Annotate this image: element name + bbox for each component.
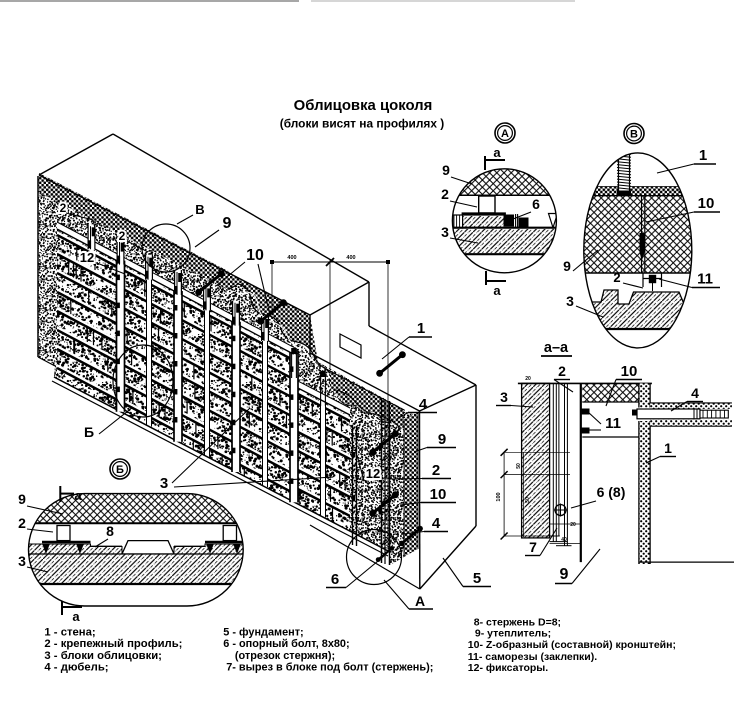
svg-text:6: 6 — [331, 571, 339, 588]
svg-text:5: 5 — [473, 570, 481, 587]
svg-text:3: 3 — [566, 293, 574, 309]
svg-text:1: 1 — [417, 320, 425, 337]
svg-text:12: 12 — [80, 250, 94, 265]
svg-text:3: 3 — [18, 553, 26, 569]
svg-text:(отрезок стержня);: (отрезок стержня); — [235, 650, 335, 662]
svg-text:20: 20 — [570, 522, 576, 528]
svg-text:В: В — [630, 129, 638, 141]
svg-text:20: 20 — [525, 376, 531, 382]
svg-text:4: 4 — [691, 385, 699, 401]
svg-text:6: 6 — [532, 196, 540, 212]
svg-text:2: 2 — [60, 201, 67, 215]
svg-text:1: 1 — [664, 440, 672, 456]
svg-text:7: 7 — [529, 539, 537, 555]
svg-text:a: a — [493, 283, 501, 298]
svg-text:3: 3 — [160, 475, 168, 492]
svg-text:9: 9 — [442, 162, 450, 178]
svg-text:9: 9 — [560, 566, 569, 583]
svg-text:4 - дюбель;: 4 - дюбель; — [44, 662, 108, 674]
svg-text:10- Z-образный (составной) кро: 10- Z-образный (составной) кронштейн; — [468, 639, 676, 651]
svg-text:100: 100 — [496, 492, 502, 501]
svg-text:2: 2 — [613, 270, 620, 285]
svg-text:2 - крепежный профиль;: 2 - крепежный профиль; — [44, 638, 182, 650]
svg-text:10: 10 — [430, 486, 447, 503]
svg-text:a: a — [72, 609, 80, 624]
svg-text:Облицовка цоколя: Облицовка цоколя — [294, 98, 433, 114]
svg-text:1: 1 — [699, 147, 707, 164]
svg-text:4: 4 — [432, 515, 441, 532]
svg-text:2: 2 — [119, 229, 126, 243]
svg-text:А: А — [501, 128, 509, 140]
svg-text:10: 10 — [246, 247, 264, 264]
svg-text:6 - опорный болт, 8х80;: 6 - опорный болт, 8х80; — [223, 638, 349, 650]
svg-text:a–a: a–a — [544, 340, 569, 356]
svg-text:1 - стена;: 1 - стена; — [44, 626, 95, 638]
svg-text:В: В — [195, 202, 204, 217]
svg-text:Б: Б — [84, 424, 94, 440]
svg-text:a: a — [74, 488, 82, 503]
svg-text:10: 10 — [698, 195, 715, 212]
svg-text:9: 9 — [223, 215, 232, 232]
svg-text:11: 11 — [697, 271, 713, 288]
svg-text:А: А — [415, 593, 425, 609]
svg-text:4: 4 — [419, 396, 428, 413]
svg-text:3: 3 — [441, 224, 449, 240]
svg-text:50: 50 — [516, 463, 522, 469]
svg-text:12- фиксаторы.: 12- фиксаторы. — [468, 662, 548, 674]
svg-text:9: 9 — [18, 491, 26, 507]
svg-text:5 - фундамент;: 5 - фундамент; — [223, 626, 303, 638]
svg-text:9: 9 — [563, 258, 571, 274]
svg-text:(блоки висят на профилях ): (блоки висят на профилях ) — [280, 117, 444, 131]
svg-text:11: 11 — [605, 415, 621, 432]
svg-text:10: 10 — [621, 363, 638, 380]
svg-text:50: 50 — [525, 497, 531, 503]
svg-text:Б: Б — [116, 464, 124, 476]
svg-text:2: 2 — [558, 363, 566, 379]
svg-text:400: 400 — [287, 255, 296, 261]
svg-text:40: 40 — [561, 537, 567, 543]
svg-text:7- вырез в блоке под болт (ст: 7- вырез в блоке под болт (стержень); — [226, 662, 433, 674]
svg-text:8: 8 — [106, 523, 114, 539]
svg-text:2: 2 — [432, 462, 440, 479]
svg-text:9- утеплитель;: 9- утеплитель; — [475, 628, 551, 640]
svg-text:3 - блоки облицовки;: 3 - блоки облицовки; — [44, 650, 162, 662]
svg-text:a: a — [493, 145, 501, 160]
svg-text:9: 9 — [438, 431, 446, 448]
svg-text:3: 3 — [500, 389, 508, 405]
svg-text:12: 12 — [366, 466, 380, 481]
svg-text:400: 400 — [346, 255, 355, 261]
svg-text:6 (8): 6 (8) — [597, 484, 626, 500]
svg-text:2: 2 — [18, 515, 26, 531]
svg-text:2: 2 — [441, 186, 449, 202]
